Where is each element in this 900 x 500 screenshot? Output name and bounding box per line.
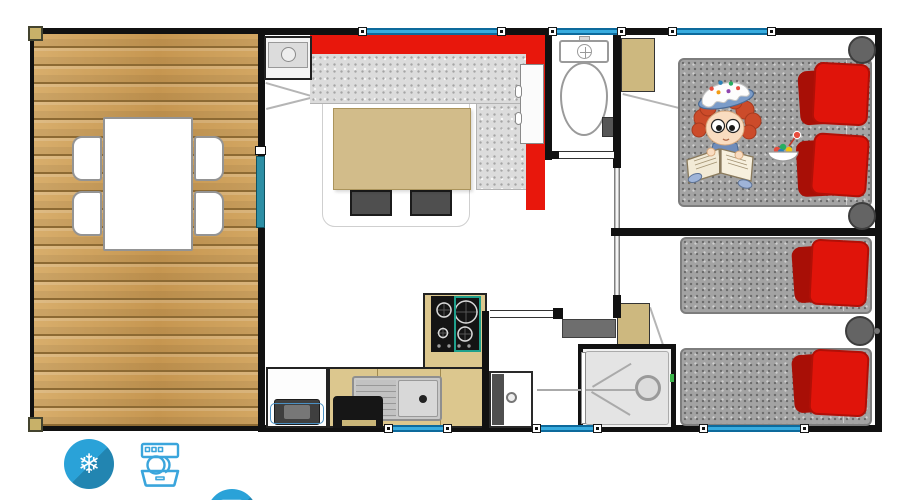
toilet-flush-dial <box>577 44 592 59</box>
tv-icon <box>207 489 257 500</box>
deck-post-bottom-left <box>28 417 43 432</box>
pillow <box>810 132 870 198</box>
dining-chair <box>194 136 224 181</box>
dining-chair <box>72 191 102 236</box>
wall-wc-bottom-stub <box>545 151 559 159</box>
stool <box>350 190 392 216</box>
snowflake-icon: ❄ <box>64 439 114 489</box>
dining-chair <box>194 191 224 236</box>
deck-wall-left <box>30 28 34 431</box>
shower-drain <box>635 375 661 401</box>
sofa-seat-top <box>310 54 526 104</box>
toilet-button <box>579 36 590 41</box>
coffee-table <box>333 108 471 190</box>
sink-drain <box>419 395 427 403</box>
dining-chair <box>72 136 102 181</box>
wall-bedroom-vertical-bottom <box>613 295 621 318</box>
sofa-side-table-handle <box>515 85 522 98</box>
shower-door <box>581 352 586 424</box>
side-cabinet-dial <box>281 47 296 62</box>
shower-spray-line <box>537 389 635 391</box>
pillow <box>811 62 870 127</box>
wc-door <box>559 151 614 159</box>
dishwasher-icon <box>136 440 184 488</box>
shower-green-mark <box>670 374 674 382</box>
candy-bowl <box>768 131 801 161</box>
sofa-back-top <box>310 35 545 54</box>
wall-wc-left <box>545 33 552 160</box>
window-bedroom-twin <box>707 425 801 432</box>
washbasin-panel <box>492 374 504 425</box>
bedroom-master-sliding-door <box>614 168 620 228</box>
sofa-side-table-handle <box>515 112 522 125</box>
oven-handle <box>342 420 376 426</box>
sink-basin <box>398 380 438 417</box>
deck-post-top-left <box>28 26 43 41</box>
patio-door <box>256 156 265 228</box>
sofa-side-table <box>520 64 544 144</box>
window-wc <box>556 28 618 35</box>
nightstand <box>848 202 876 230</box>
deck-wall-top <box>30 28 262 34</box>
bedroom-twin-sliding-door <box>614 236 620 295</box>
shower-room-door <box>490 310 554 318</box>
patio-door-cap <box>255 146 266 155</box>
window-shower-room <box>540 425 594 432</box>
wall-between-bedrooms <box>611 228 882 236</box>
pillow <box>808 239 869 308</box>
shower-shelf <box>562 319 616 338</box>
wall-bedroom-vertical-top <box>613 33 621 168</box>
pillow <box>808 349 869 418</box>
cartoon-child-illustration <box>675 66 810 191</box>
wardrobe-master <box>621 38 655 92</box>
stool <box>410 190 452 216</box>
window-bedroom-master <box>676 28 768 35</box>
washbasin-faucet <box>506 392 517 403</box>
gas-hob <box>431 296 481 352</box>
nightstand <box>848 36 876 64</box>
shower-room-cabinet <box>617 303 650 346</box>
snowflake-glyph: ❄ <box>78 451 101 478</box>
window-living <box>366 28 498 35</box>
wall-kitchen-right <box>482 311 489 431</box>
nightstand <box>845 316 875 346</box>
shower-room-door-hinge <box>553 308 563 319</box>
dining-table <box>103 117 193 251</box>
deck-wall-bottom <box>30 426 262 431</box>
window-kitchen <box>392 425 444 432</box>
nightstand-handle <box>874 328 880 334</box>
fridge-frame <box>270 403 324 424</box>
floorplan-canvas: ❄ <box>0 0 900 500</box>
